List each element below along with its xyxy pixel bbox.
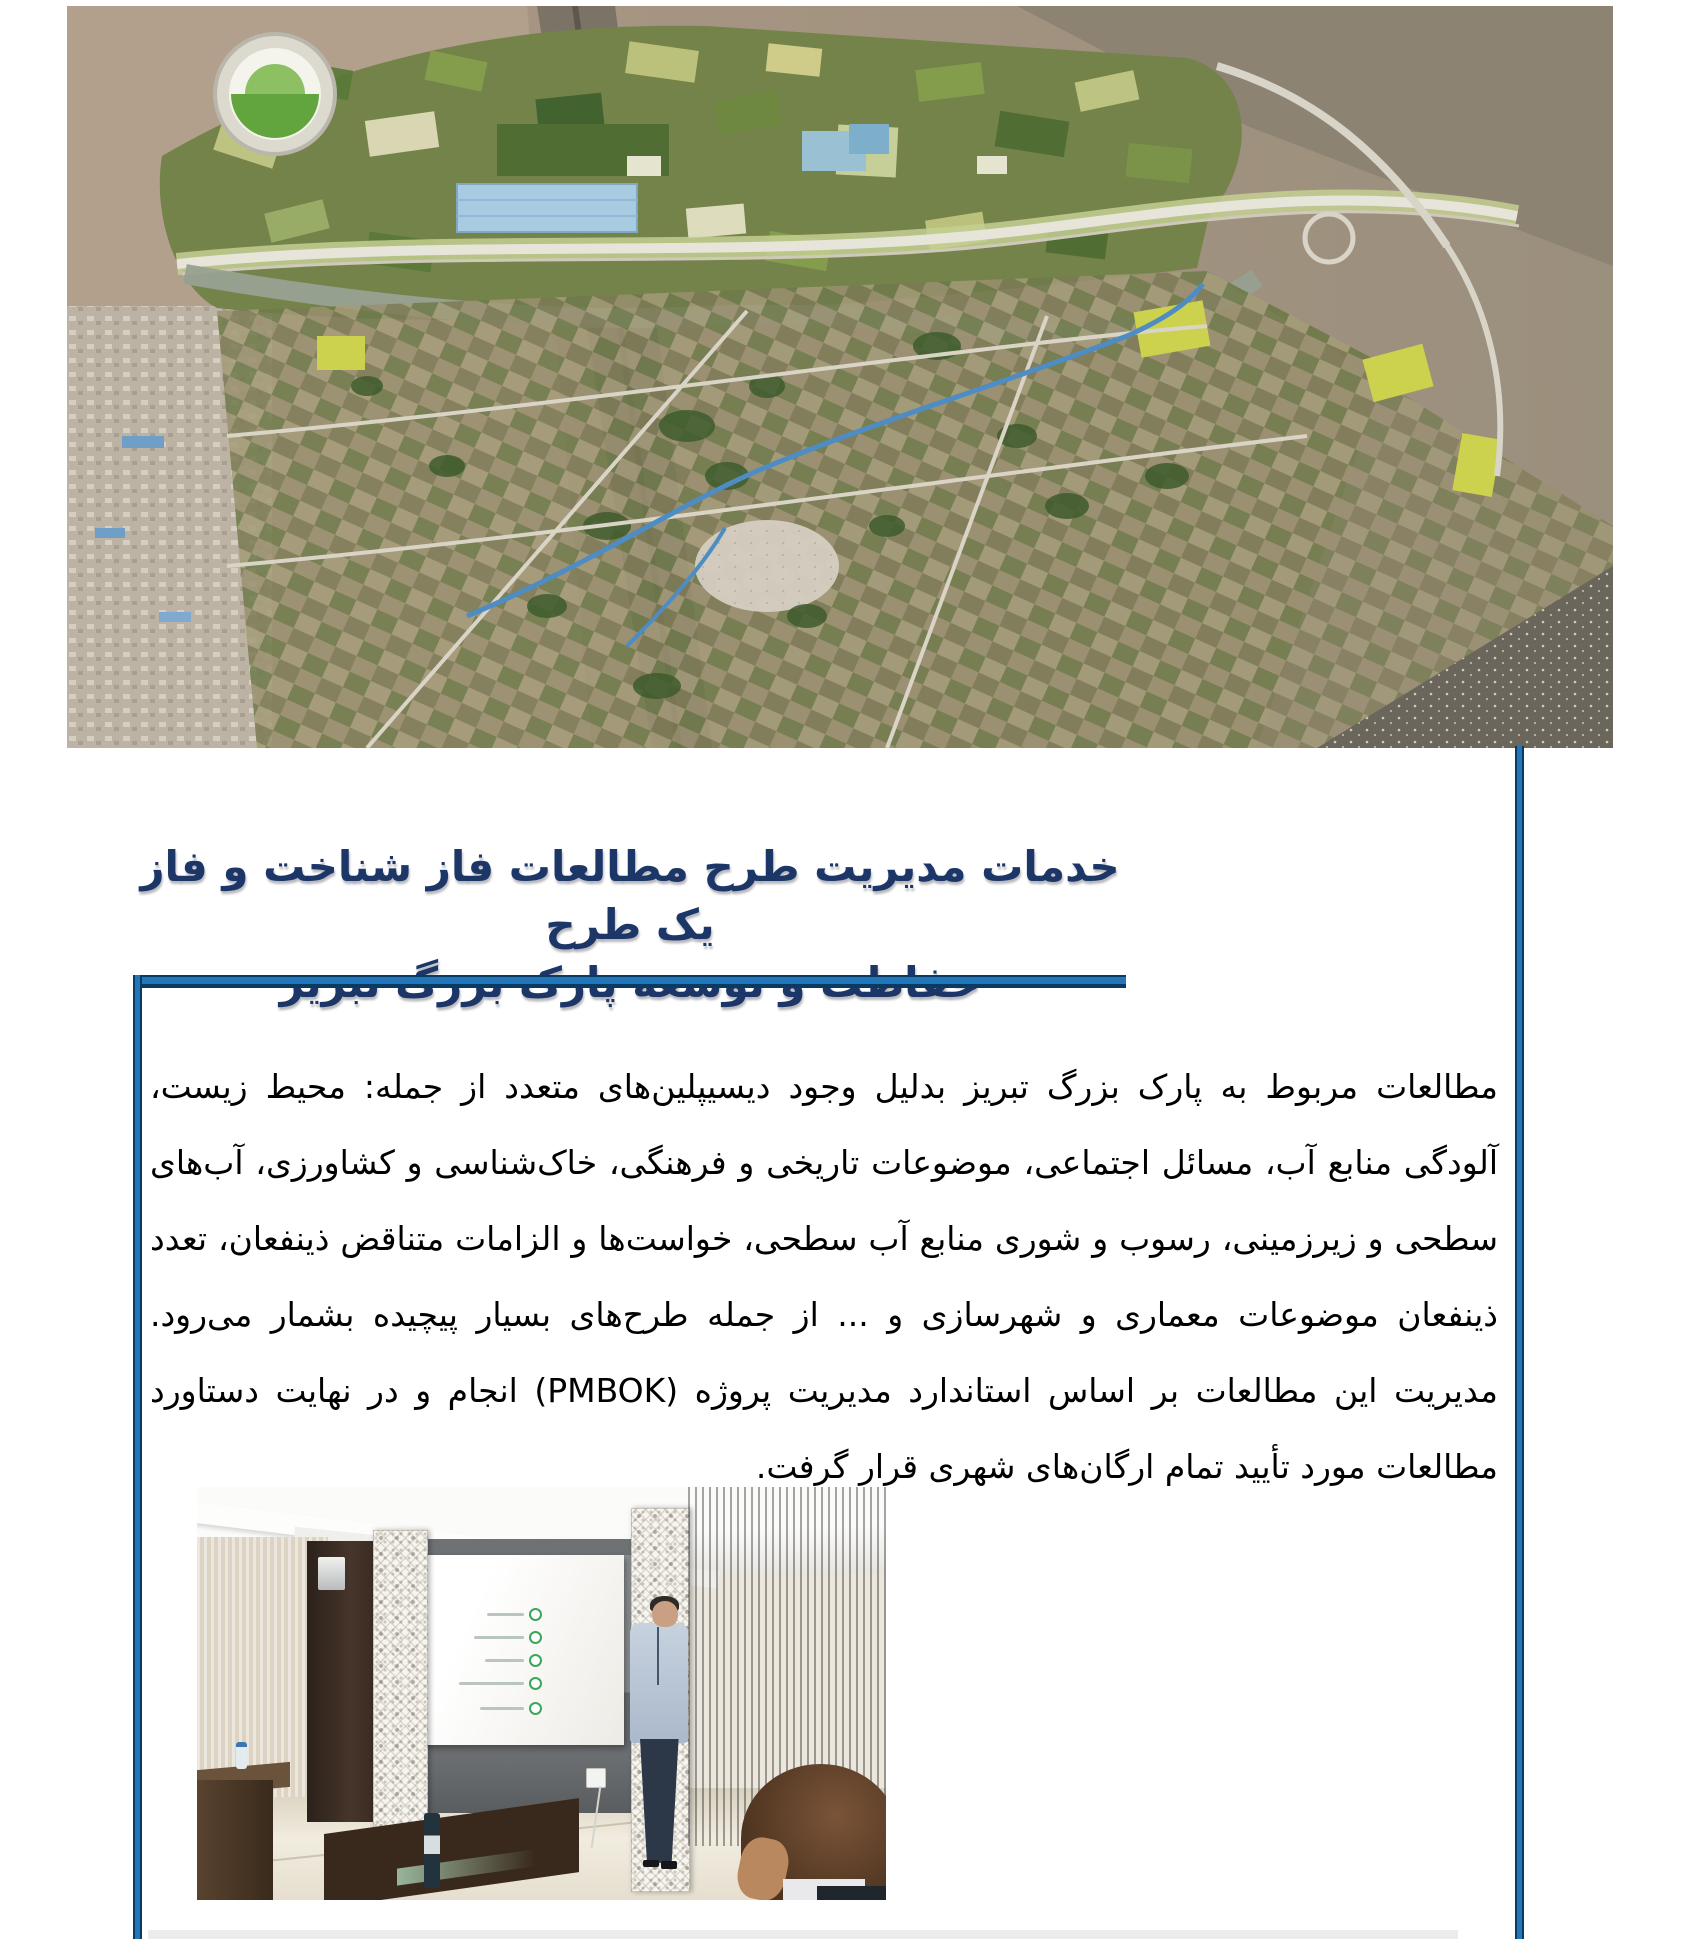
left-border-rule [133,975,142,1939]
map-stadium [215,34,335,154]
right-border-rule [1515,746,1524,1939]
page-bottom-strip [148,1930,1458,1939]
photo-audience-shoulder [817,1886,886,1900]
body-paragraph: مطالعات مربوط به پارک بزرگ تبریز بدلیل و… [150,1049,1498,1505]
map-blue-roof [122,436,164,448]
photo-water-bottle [236,1742,248,1769]
photo-presenter-lanyard [657,1627,659,1685]
map-water-pools [457,184,637,232]
slide-bullet-icon [529,1654,542,1667]
heading-underline-bar [134,975,1126,988]
photo-wall-speaker [318,1557,346,1590]
map-farmland [217,271,1387,748]
slide-bullet-icon [529,1702,542,1715]
photo-presenter-shirt [630,1623,688,1743]
photo-podium [197,1780,273,1900]
photo-projection-screen [407,1555,624,1745]
photo-presenter-shoe [661,1861,676,1868]
master-plan-aerial-map: نگاره ۳۷ - تصویر شبیه‌سازی شده پارک بزرگ… [67,6,1613,748]
slide-bullet-icon [529,1677,542,1690]
presentation-meeting-photo [197,1487,886,1900]
slide-bullet-icon [529,1608,542,1621]
photo-water-bottle [424,1813,440,1887]
photo-screen-case [400,1539,634,1556]
photo-presenter-head [652,1601,678,1628]
photo-presenter-shoe [643,1860,658,1867]
slide-bullet-icon [529,1631,542,1644]
map-blue-roof [95,528,125,538]
map-blue-roof [159,612,191,622]
photo-power-outlet [586,1768,606,1789]
master-plan-map-graphic: نگاره ۳۷ - تصویر شبیه‌سازی شده پارک بزرگ… [67,6,1613,748]
section-title-line1: خدمات مدیریت طرح مطالعات فاز شناخت و فاز… [135,838,1125,954]
report-page: { "page": { "accent_blue": "#2277bb", "r… [0,0,1690,1939]
map-village-texture [695,520,839,612]
